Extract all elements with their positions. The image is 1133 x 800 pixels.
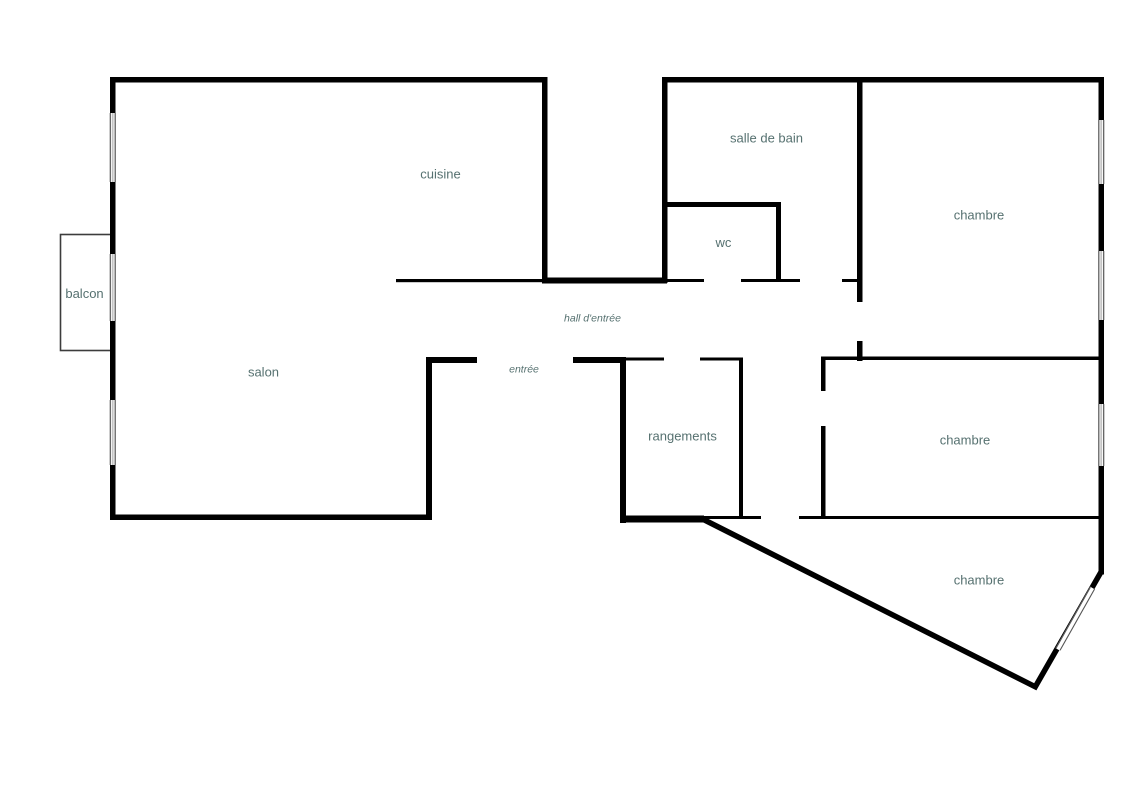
svg-text:chambre: chambre (954, 208, 1005, 223)
svg-text:chambre: chambre (940, 433, 991, 448)
svg-text:balcon: balcon (65, 286, 103, 301)
svg-text:wc: wc (715, 235, 732, 250)
svg-text:salle de bain: salle de bain (730, 131, 803, 146)
svg-text:cuisine: cuisine (420, 167, 460, 182)
svg-text:chambre: chambre (954, 573, 1005, 588)
svg-text:hall d'entrée: hall d'entrée (564, 313, 621, 325)
svg-text:rangements: rangements (648, 429, 717, 444)
svg-text:salon: salon (248, 365, 279, 380)
svg-text:entrée: entrée (509, 364, 539, 376)
